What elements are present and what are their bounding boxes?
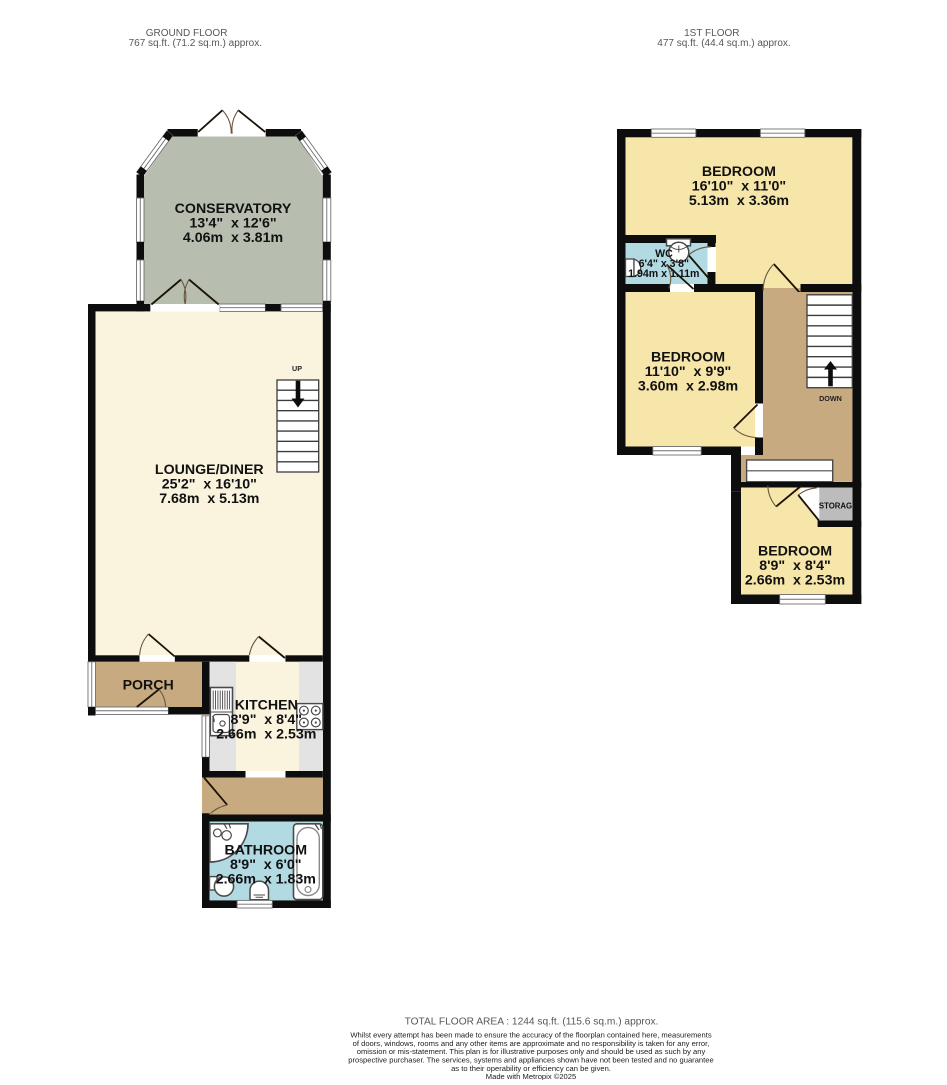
svg-text:2.66m x 1.83m: 2.66m x 1.83m <box>216 872 316 888</box>
svg-text:STORAGE: STORAGE <box>819 501 857 510</box>
svg-text:BEDROOM: BEDROOM <box>651 350 725 366</box>
svg-text:TOTAL FLOOR AREA : 1244 sq.ft.: TOTAL FLOOR AREA : 1244 sq.ft. (115.6 sq… <box>405 1017 659 1028</box>
svg-text:LOUNGE/DINER: LOUNGE/DINER <box>155 462 264 478</box>
svg-text:BEDROOM: BEDROOM <box>758 544 832 560</box>
svg-text:3.60m x 2.98m: 3.60m x 2.98m <box>638 379 738 395</box>
svg-text:PORCH: PORCH <box>123 677 174 693</box>
svg-text:Made with Metropix ©2025: Made with Metropix ©2025 <box>486 1072 576 1080</box>
svg-text:4.06m x 3.81m: 4.06m x 3.81m <box>183 230 283 246</box>
svg-text:767 sq.ft. (71.2 sq.m.) approx: 767 sq.ft. (71.2 sq.m.) approx. <box>129 38 262 49</box>
svg-text:KITCHEN: KITCHEN <box>235 698 298 714</box>
svg-text:11'10" x 9'9": 11'10" x 9'9" <box>645 364 731 380</box>
svg-text:DOWN: DOWN <box>819 394 842 403</box>
svg-text:8'9" x 6'0": 8'9" x 6'0" <box>230 857 301 873</box>
svg-text:8'9" x 8'4": 8'9" x 8'4" <box>759 558 830 574</box>
svg-text:2.66m x 2.53m: 2.66m x 2.53m <box>216 727 316 743</box>
svg-text:477 sq.ft. (44.4 sq.m.) approx: 477 sq.ft. (44.4 sq.m.) approx. <box>657 38 790 49</box>
svg-text:5.13m x 3.36m: 5.13m x 3.36m <box>689 193 789 209</box>
svg-text:BEDROOM: BEDROOM <box>702 164 776 180</box>
svg-text:2.66m x 2.53m: 2.66m x 2.53m <box>745 573 845 589</box>
svg-text:13'4" x 12'6": 13'4" x 12'6" <box>189 216 276 232</box>
svg-text:UP: UP <box>292 364 302 373</box>
svg-text:1.94m x 1.11m: 1.94m x 1.11m <box>628 268 699 280</box>
svg-text:BATHROOM: BATHROOM <box>225 842 308 858</box>
svg-text:25'2" x 16'10": 25'2" x 16'10" <box>162 477 257 493</box>
svg-text:7.68m x 5.13m: 7.68m x 5.13m <box>159 491 259 507</box>
svg-text:16'10" x 11'0": 16'10" x 11'0" <box>692 179 786 195</box>
svg-text:CONSERVATORY: CONSERVATORY <box>175 201 292 217</box>
svg-text:8'9" x 8'4": 8'9" x 8'4" <box>231 712 302 728</box>
